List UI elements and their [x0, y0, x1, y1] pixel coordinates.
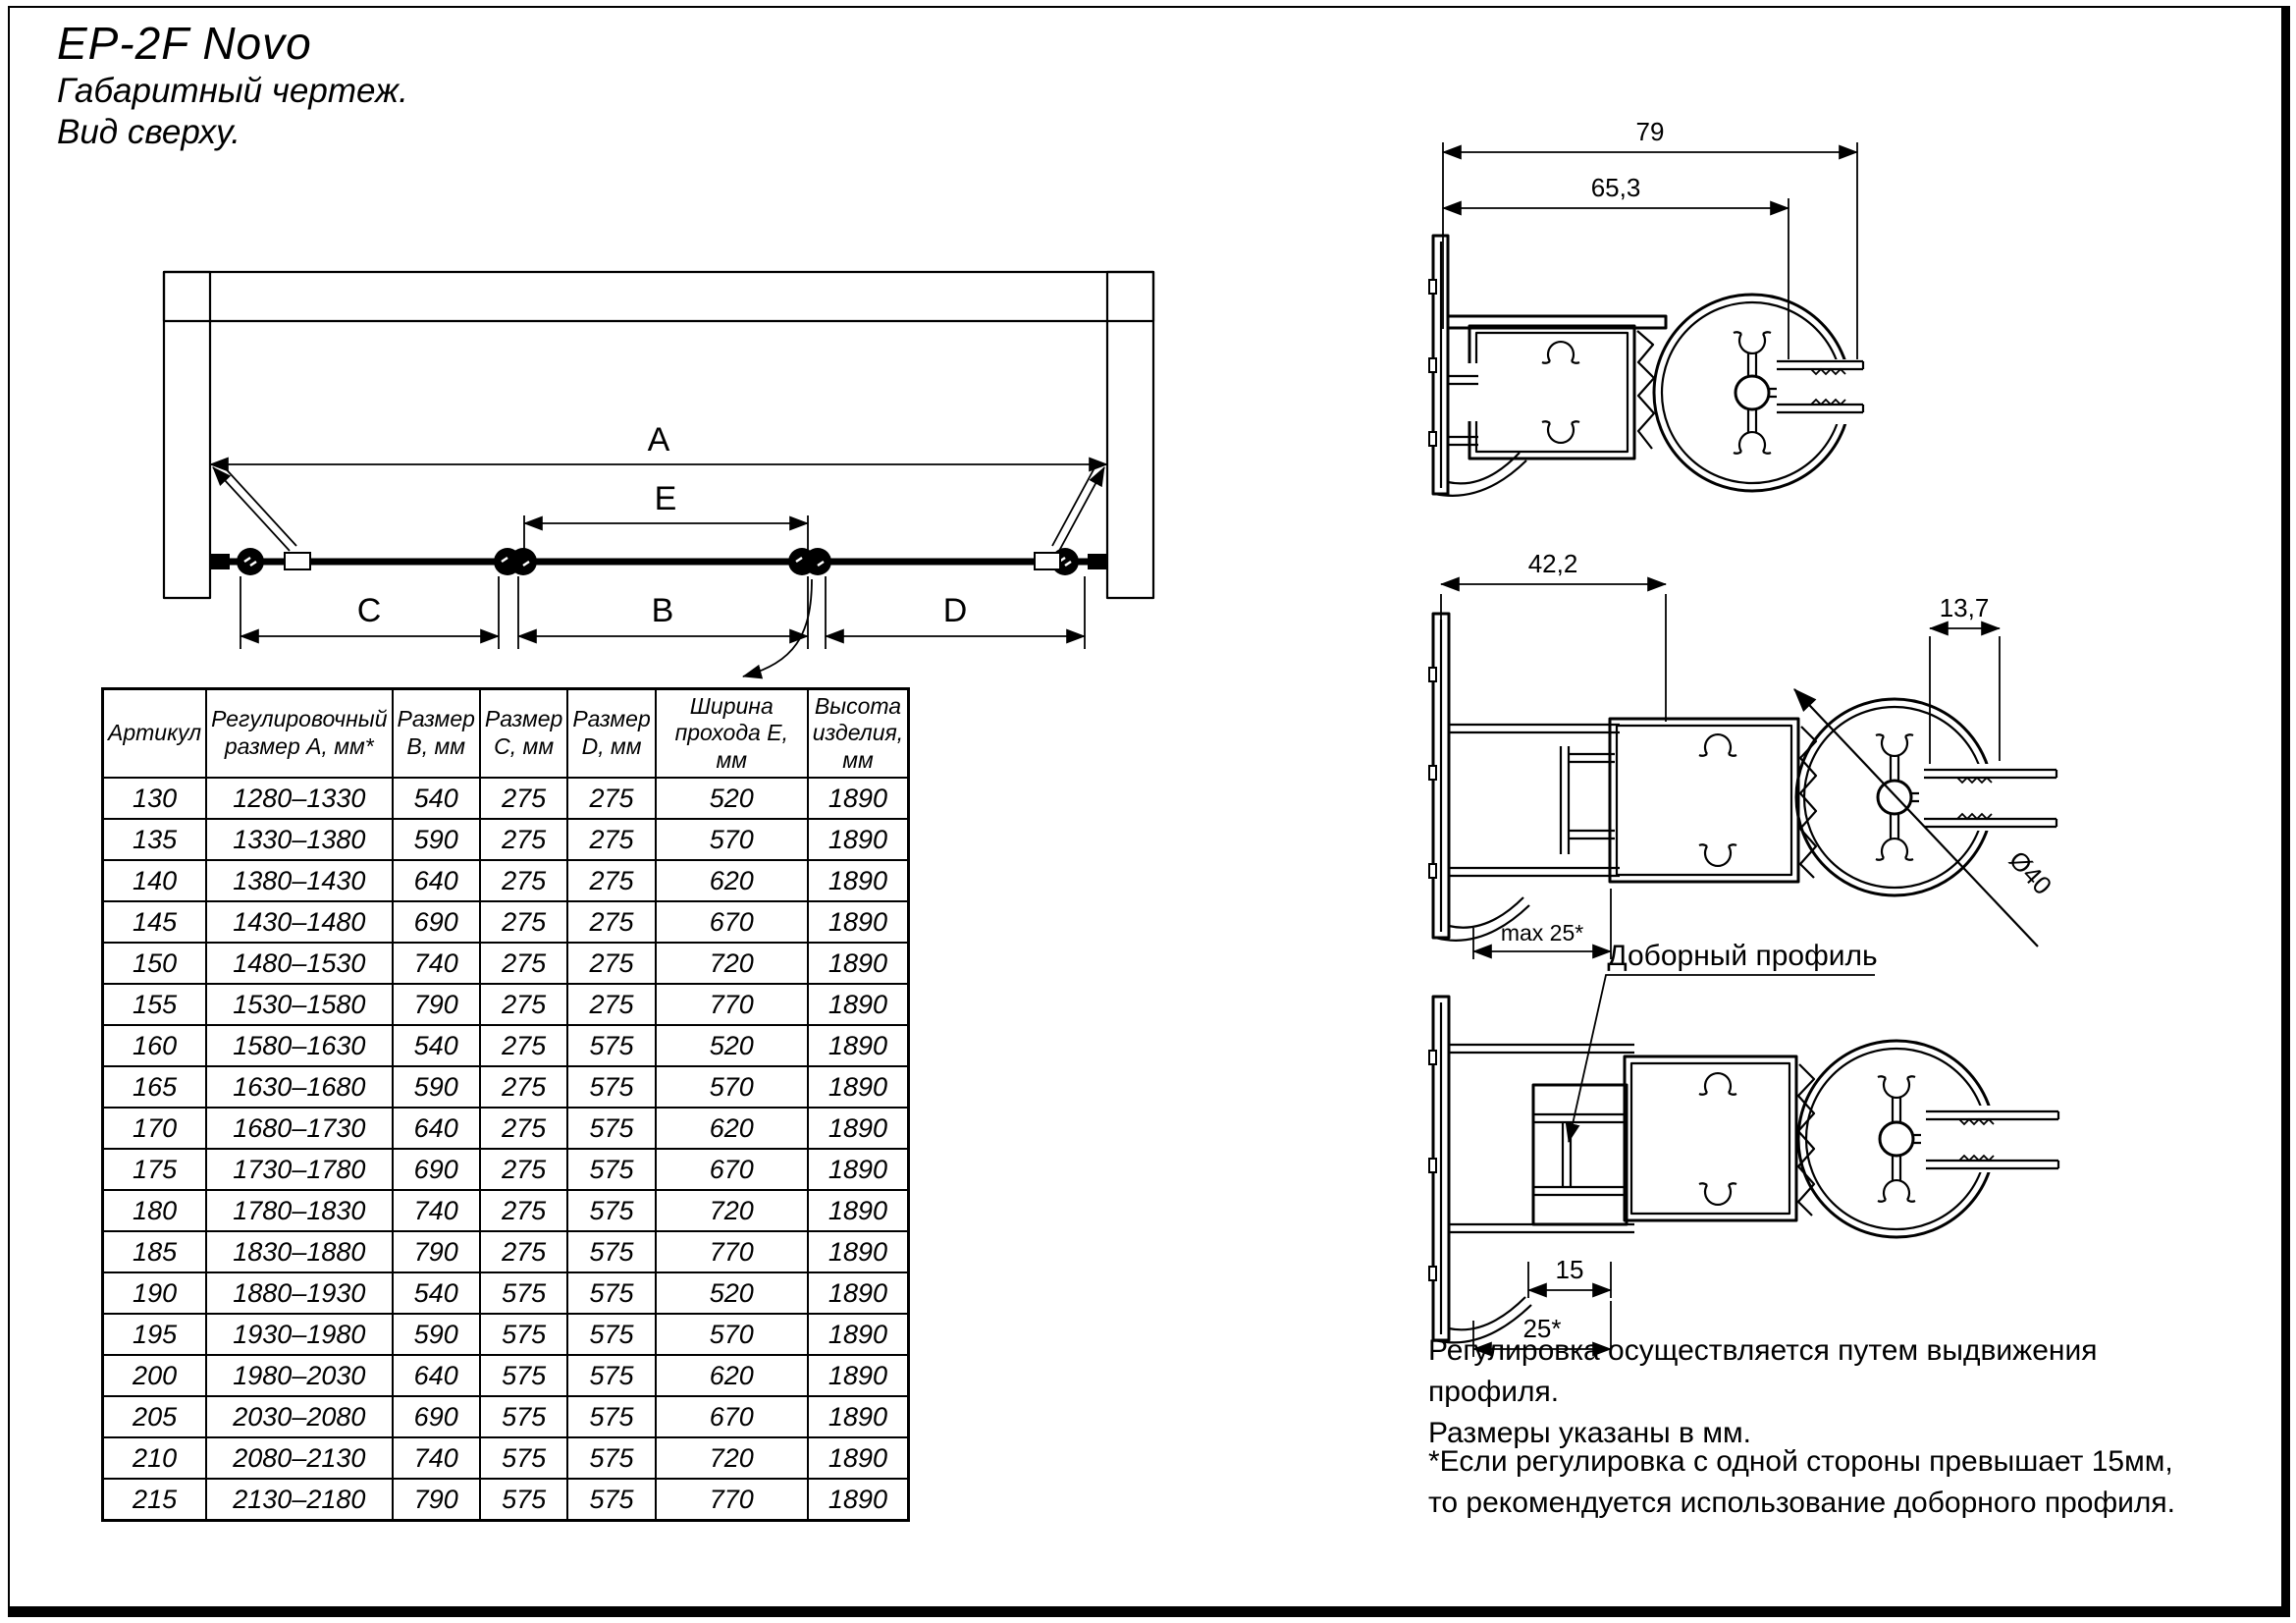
table-row: 2102080–21307405755757201890 — [103, 1437, 909, 1479]
table-cell: 575 — [480, 1437, 567, 1479]
table-row: 1851830–18807902755757701890 — [103, 1231, 909, 1272]
table-cell: 590 — [393, 819, 480, 860]
table-cell: 210 — [103, 1437, 207, 1479]
wall-profile — [1429, 614, 1529, 941]
table-cell: 790 — [393, 984, 480, 1025]
table-cell: 720 — [656, 1190, 808, 1231]
table-cell: 1730–1780 — [206, 1149, 392, 1190]
table-cell: 575 — [567, 1396, 655, 1437]
table-cell: 1830–1880 — [206, 1231, 392, 1272]
pivot-knob — [494, 548, 537, 575]
table-cell: 1890 — [808, 1149, 909, 1190]
table-cell: 180 — [103, 1190, 207, 1231]
table-cell: 1890 — [808, 1108, 909, 1149]
note-asterisk: *Если регулировка с одной стороны превыш… — [1428, 1441, 2233, 1524]
extension-tongues — [1449, 1045, 1634, 1232]
table-cell: 1890 — [808, 1355, 909, 1396]
table-cell: 1480–1530 — [206, 943, 392, 984]
wall-connector-right — [1088, 554, 1107, 569]
table-cell: 790 — [393, 1231, 480, 1272]
table-cell: 690 — [393, 901, 480, 943]
table-header-cell: Ширина прохода Е, мм — [656, 689, 808, 779]
table-row: 2001980–20306405755756201890 — [103, 1355, 909, 1396]
table-cell: 275 — [480, 860, 567, 901]
dimension-b: B — [518, 576, 808, 649]
table-cell: 275 — [567, 901, 655, 943]
table-cell: 790 — [393, 1479, 480, 1521]
table-cell: 575 — [567, 1437, 655, 1479]
table-header-cell: Высота изделия, мм — [808, 689, 909, 779]
table-cell: 540 — [393, 1025, 480, 1066]
table-cell: 520 — [656, 1272, 808, 1314]
size-table: АртикулРегулировочный размер А, мм*Разме… — [101, 687, 910, 1522]
table-cell: 1430–1480 — [206, 901, 392, 943]
table-cell: 185 — [103, 1231, 207, 1272]
page-subtitle-2: Вид сверху. — [57, 112, 408, 153]
door-brace-right — [1052, 462, 1104, 551]
table-cell: 575 — [567, 1190, 655, 1231]
table-cell: 575 — [567, 1355, 655, 1396]
table-cell: 200 — [103, 1355, 207, 1396]
adjustment-profile — [1448, 326, 1654, 459]
table-row: 1751730–17806902755756701890 — [103, 1149, 909, 1190]
table-cell: 275 — [567, 943, 655, 984]
table-cell: 275 — [480, 943, 567, 984]
table-cell: 275 — [480, 1025, 567, 1066]
door-line — [210, 548, 1107, 575]
table-cell: 2130–2180 — [206, 1479, 392, 1521]
table-cell: 520 — [656, 778, 808, 819]
brace-bracket-right — [1035, 553, 1060, 569]
table-cell: 275 — [567, 819, 655, 860]
filler-profile — [1533, 1085, 1627, 1224]
table-cell: 1630–1680 — [206, 1066, 392, 1108]
table-row: 1551530–15807902752757701890 — [103, 984, 909, 1025]
table-header-row: АртикулРегулировочный размер А, мм*Разме… — [103, 689, 909, 779]
table-cell: 575 — [480, 1479, 567, 1521]
dimension-d: D — [826, 576, 1085, 649]
table-cell: 275 — [480, 901, 567, 943]
table-cell: 620 — [656, 1108, 808, 1149]
table-cell: 275 — [480, 984, 567, 1025]
table-cell: 1890 — [808, 1231, 909, 1272]
table-cell: 620 — [656, 860, 808, 901]
dim-13-7-label: 13,7 — [1940, 593, 1990, 622]
adjustment-profile — [1625, 1056, 1814, 1220]
table-cell: 1890 — [808, 1437, 909, 1479]
table-cell: 1890 — [808, 819, 909, 860]
table-row: 1351330–13805902752755701890 — [103, 819, 909, 860]
table-cell: 1890 — [808, 860, 909, 901]
note-adjustment: Регулировка осуществляется путем выдвиже… — [1428, 1330, 2233, 1454]
dimension-13-7: 13,7 — [1930, 593, 2000, 764]
dim-42-2-label: 42,2 — [1528, 549, 1578, 578]
table-cell: 1890 — [808, 1272, 909, 1314]
table-row: 1801780–18307402755757201890 — [103, 1190, 909, 1231]
table-cell: 520 — [656, 1025, 808, 1066]
wall-connector-left — [210, 554, 230, 569]
dim-b-label: B — [652, 592, 674, 629]
table-cell: 1890 — [808, 901, 909, 943]
table-cell: 1890 — [808, 1025, 909, 1066]
table-cell: 740 — [393, 1190, 480, 1231]
table-cell: 150 — [103, 943, 207, 984]
table-cell: 575 — [567, 1066, 655, 1108]
table-cell: 590 — [393, 1314, 480, 1355]
table-row: 1501480–15307402752757201890 — [103, 943, 909, 984]
table-cell: 640 — [393, 1355, 480, 1396]
dimension-15: 15 — [1528, 1255, 1611, 1298]
table-cell: 155 — [103, 984, 207, 1025]
table-cell: 1890 — [808, 943, 909, 984]
table-cell: 205 — [103, 1396, 207, 1437]
dimension-65-3: 65,3 — [1443, 173, 1789, 366]
table-cell: 575 — [480, 1396, 567, 1437]
dim-d-label: D — [943, 592, 968, 629]
table-cell: 740 — [393, 1437, 480, 1479]
table-cell: 575 — [567, 1231, 655, 1272]
table-cell: 275 — [480, 1108, 567, 1149]
dimension-e: E — [524, 480, 808, 557]
table-cell: 770 — [656, 1231, 808, 1272]
table-cell: 640 — [393, 1108, 480, 1149]
table-cell: 670 — [656, 1149, 808, 1190]
table-cell: 1380–1430 — [206, 860, 392, 901]
table-row: 2152130–21807905755757701890 — [103, 1479, 909, 1521]
table-cell: 1330–1380 — [206, 819, 392, 860]
title-block: EP-2F Novo Габаритный чертеж. Вид сверху… — [57, 16, 408, 153]
table-cell: 145 — [103, 901, 207, 943]
table-row: 1951930–19805905755755701890 — [103, 1314, 909, 1355]
table-row: 1701680–17306402755756201890 — [103, 1108, 909, 1149]
table-cell: 1890 — [808, 1314, 909, 1355]
filler-profile-callout: Доборный профиль — [1569, 940, 1878, 1142]
table-cell: 2080–2130 — [206, 1437, 392, 1479]
table-cell: 275 — [480, 1149, 567, 1190]
table-cell: 640 — [393, 860, 480, 901]
table-header-cell: Размер В, мм — [393, 689, 480, 779]
profile-section-bottom: Доборный профиль — [1414, 928, 2061, 1394]
table-cell: 275 — [480, 1066, 567, 1108]
table-cell: 1280–1330 — [206, 778, 392, 819]
table-cell: 575 — [567, 1149, 655, 1190]
table-cell: 1980–2030 — [206, 1355, 392, 1396]
profile-section-middle: 42,2 13,7 — [1414, 540, 2061, 962]
table-cell: 195 — [103, 1314, 207, 1355]
dimension-a: A — [210, 421, 1107, 464]
dim-79-label: 79 — [1636, 117, 1665, 146]
dimension-42-2: 42,2 — [1441, 549, 1666, 722]
table-cell: 1890 — [808, 1396, 909, 1437]
extension-tongues — [1449, 725, 1620, 876]
table-cell: 275 — [567, 778, 655, 819]
filler-profile-label: Доборный профиль — [1607, 940, 1877, 972]
table-cell: 540 — [393, 778, 480, 819]
door-brace-left — [213, 462, 296, 551]
table-cell: 1890 — [808, 1190, 909, 1231]
table-row: 1901880–19305405755755201890 — [103, 1272, 909, 1314]
door-swing-arrow — [743, 579, 812, 676]
table-cell: 575 — [480, 1272, 567, 1314]
table-cell: 670 — [656, 901, 808, 943]
dim-dia-label: Ø40 — [2003, 845, 2057, 900]
table-cell: 575 — [480, 1314, 567, 1355]
table-cell: 2030–2080 — [206, 1396, 392, 1437]
table-cell: 140 — [103, 860, 207, 901]
table-cell: 160 — [103, 1025, 207, 1066]
table-cell: 175 — [103, 1149, 207, 1190]
page-subtitle-1: Габаритный чертеж. — [57, 71, 408, 112]
pivot-knob — [237, 548, 264, 575]
drawing-sheet: { "header": { "title": "EP-2F Novo", "su… — [0, 0, 2296, 1623]
table-cell: 1780–1830 — [206, 1190, 392, 1231]
table-cell: 770 — [656, 1479, 808, 1521]
table-cell: 130 — [103, 778, 207, 819]
profile-section-top: 79 65,3 — [1414, 83, 1895, 535]
dim-65-3-label: 65,3 — [1591, 173, 1641, 202]
note-line: *Если регулировка с одной стороны превыш… — [1428, 1441, 2233, 1483]
table-cell: 275 — [480, 778, 567, 819]
table-cell: 620 — [656, 1355, 808, 1396]
table-cell: 590 — [393, 1066, 480, 1108]
wall-profile — [1429, 997, 1531, 1342]
table-header-cell: Артикул — [103, 689, 207, 779]
table-row: 1301280–13305402752755201890 — [103, 778, 909, 819]
table-cell: 1880–1930 — [206, 1272, 392, 1314]
table-cell: 1930–1980 — [206, 1314, 392, 1355]
table-cell: 575 — [567, 1314, 655, 1355]
note-line: то рекомендуется использование доборного… — [1428, 1483, 2233, 1524]
table-cell: 190 — [103, 1272, 207, 1314]
table-cell: 275 — [480, 1190, 567, 1231]
table-cell: 575 — [480, 1355, 567, 1396]
dimension-c: C — [240, 576, 499, 649]
table-cell: 540 — [393, 1272, 480, 1314]
table-cell: 575 — [567, 1479, 655, 1521]
table-row: 1601580–16305402755755201890 — [103, 1025, 909, 1066]
dim-e-label: E — [655, 480, 677, 517]
table-cell: 1580–1630 — [206, 1025, 392, 1066]
table-cell: 215 — [103, 1479, 207, 1521]
table-cell: 570 — [656, 1314, 808, 1355]
table-cell: 275 — [567, 860, 655, 901]
table-cell: 1890 — [808, 1066, 909, 1108]
brace-bracket-left — [285, 553, 310, 569]
table-cell: 690 — [393, 1149, 480, 1190]
table-cell: 1890 — [808, 778, 909, 819]
table-header-cell: Регулировочный размер А, мм* — [206, 689, 392, 779]
table-cell: 770 — [656, 984, 808, 1025]
table-cell: 170 — [103, 1108, 207, 1149]
table-row: 2052030–20806905755756701890 — [103, 1396, 909, 1437]
table-cell: 690 — [393, 1396, 480, 1437]
interlock-teeth — [1637, 331, 1654, 449]
table-cell: 570 — [656, 819, 808, 860]
table-row: 1451430–14806902752756701890 — [103, 901, 909, 943]
table-cell: 165 — [103, 1066, 207, 1108]
table-cell: 570 — [656, 1066, 808, 1108]
table-cell: 720 — [656, 1437, 808, 1479]
dim-c-label: C — [357, 592, 382, 629]
pivot-knob — [788, 548, 831, 575]
table-header-cell: Размер D, мм — [567, 689, 655, 779]
table-cell: 740 — [393, 943, 480, 984]
table-header-cell: Размер С, мм — [480, 689, 567, 779]
table-cell: 275 — [480, 819, 567, 860]
table-row: 1651630–16805902755755701890 — [103, 1066, 909, 1108]
table-cell: 275 — [480, 1231, 567, 1272]
table-cell: 1890 — [808, 1479, 909, 1521]
dim-15-label: 15 — [1556, 1255, 1584, 1284]
table-cell: 720 — [656, 943, 808, 984]
pivot-profile — [1798, 1041, 2061, 1237]
table-cell: 1890 — [808, 984, 909, 1025]
note-line: Регулировка осуществляется путем выдвиже… — [1428, 1330, 2233, 1413]
table-cell: 1530–1580 — [206, 984, 392, 1025]
table-cell: 275 — [567, 984, 655, 1025]
table-cell: 575 — [567, 1025, 655, 1066]
table-row: 1401380–14306402752756201890 — [103, 860, 909, 901]
top-view-drawing: A E — [162, 270, 1163, 682]
table-cell: 670 — [656, 1396, 808, 1437]
table-cell: 1680–1730 — [206, 1108, 392, 1149]
table-cell: 135 — [103, 819, 207, 860]
table-cell: 575 — [567, 1272, 655, 1314]
dim-a-label: A — [648, 421, 670, 459]
page-title: EP-2F Novo — [57, 16, 408, 71]
adjustment-profile — [1610, 719, 1816, 882]
table-cell: 575 — [567, 1108, 655, 1149]
pivot-profile — [1654, 295, 1895, 491]
